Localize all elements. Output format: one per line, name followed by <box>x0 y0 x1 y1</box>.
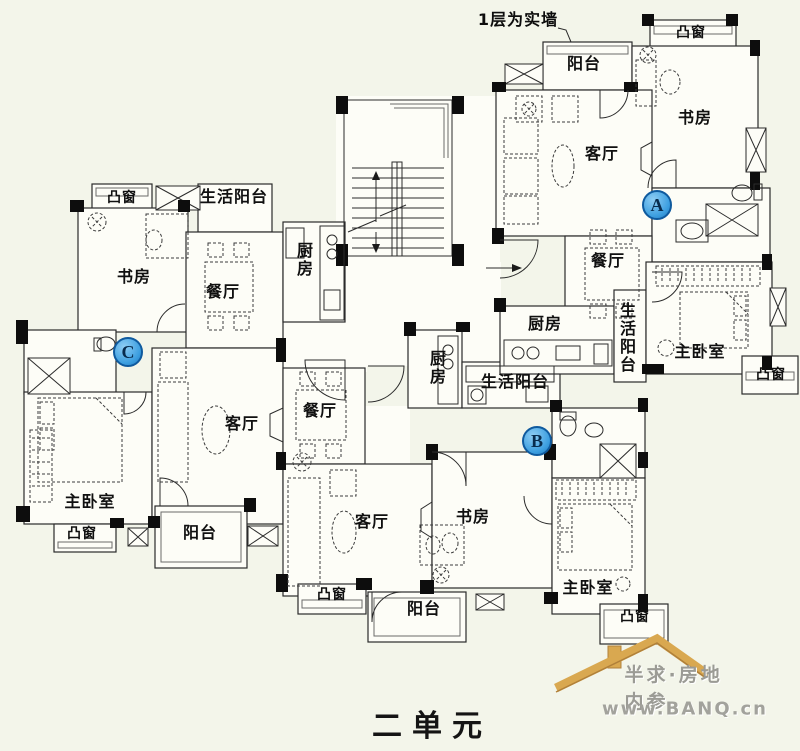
room-label-b-bay-window-right: 凸窗 <box>620 610 650 624</box>
room-label-b-study: 书房 <box>456 509 490 525</box>
logo-url-text: www.BANQ.cn <box>602 699 768 720</box>
room-label-c-dining-room: 餐厅 <box>206 284 240 300</box>
room-label-b-bay-window-left: 凸窗 <box>317 588 347 602</box>
room-label-a-utility-balcony: 生活阳台 <box>618 302 634 374</box>
room-label-a-dining-room: 餐厅 <box>591 253 625 269</box>
room-label-b-kitchen: 厨房 <box>428 350 444 386</box>
room-label-c-living-room: 客厅 <box>225 416 259 432</box>
room-label-a-bay-window-top: 凸窗 <box>676 26 706 40</box>
unit-marker-c: C <box>113 337 143 367</box>
page-title: 二单元 <box>372 701 492 745</box>
floor-plan-page: 1层为实墙 凸窗 阳台 书房 客厅 餐厅 厨房 生活阳台 主卧室 凸窗 A 餐厅… <box>0 0 800 751</box>
room-label-a-balcony: 阳台 <box>567 56 601 72</box>
room-label-b-dining-room: 餐厅 <box>303 403 337 419</box>
room-label-b-master-bedroom: 主卧室 <box>562 580 613 596</box>
unit-marker-a: A <box>642 190 672 220</box>
room-label-b-living-room: 客厅 <box>355 514 389 530</box>
room-label-c-bay-window-top: 凸窗 <box>107 191 137 205</box>
room-label-b-balcony: 阳台 <box>407 601 441 617</box>
room-label-c-study: 书房 <box>117 269 151 285</box>
room-label-c-bay-window-bottom: 凸窗 <box>67 527 97 541</box>
room-label-a-study: 书房 <box>678 110 712 126</box>
room-label-c-kitchen: 厨房 <box>295 242 311 278</box>
room-label-a-kitchen: 厨房 <box>528 316 562 332</box>
room-label-b-utility-balcony: 生活阳台 <box>481 374 549 390</box>
room-label-a-bay-window-side: 凸窗 <box>756 368 786 382</box>
room-label-c-utility-balcony: 生活阳台 <box>200 189 268 205</box>
room-label-a-master-bedroom: 主卧室 <box>674 344 725 360</box>
unit-marker-b: B <box>522 426 552 456</box>
room-label-c-balcony: 阳台 <box>183 525 217 541</box>
room-label-a-living-room: 客厅 <box>585 146 619 162</box>
room-label-c-master-bedroom: 主卧室 <box>64 494 115 510</box>
note-solid-wall: 1层为实墙 <box>478 6 558 30</box>
